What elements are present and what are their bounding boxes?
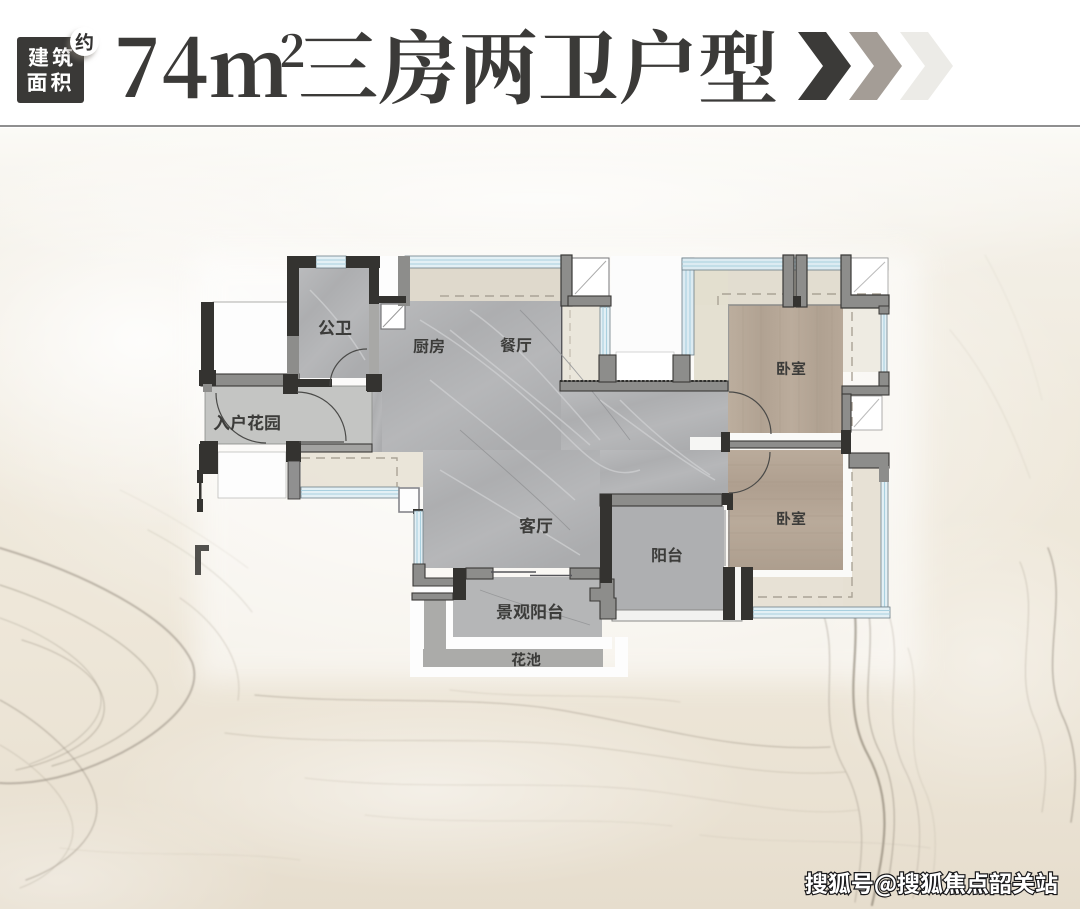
svg-text:公卫: 公卫 [318,314,352,339]
svg-text:客厅: 客厅 [519,512,553,537]
svg-text:阳台: 阳台 [651,542,683,566]
svg-text:花池: 花池 [511,649,541,670]
svg-text:景观阳台: 景观阳台 [496,598,564,623]
svg-text:卧室: 卧室 [776,508,806,529]
svg-text:入户花园: 入户花园 [213,409,281,434]
svg-text:卧室: 卧室 [776,358,806,379]
svg-text:餐厅: 餐厅 [500,332,532,356]
svg-text:厨房: 厨房 [413,333,445,357]
